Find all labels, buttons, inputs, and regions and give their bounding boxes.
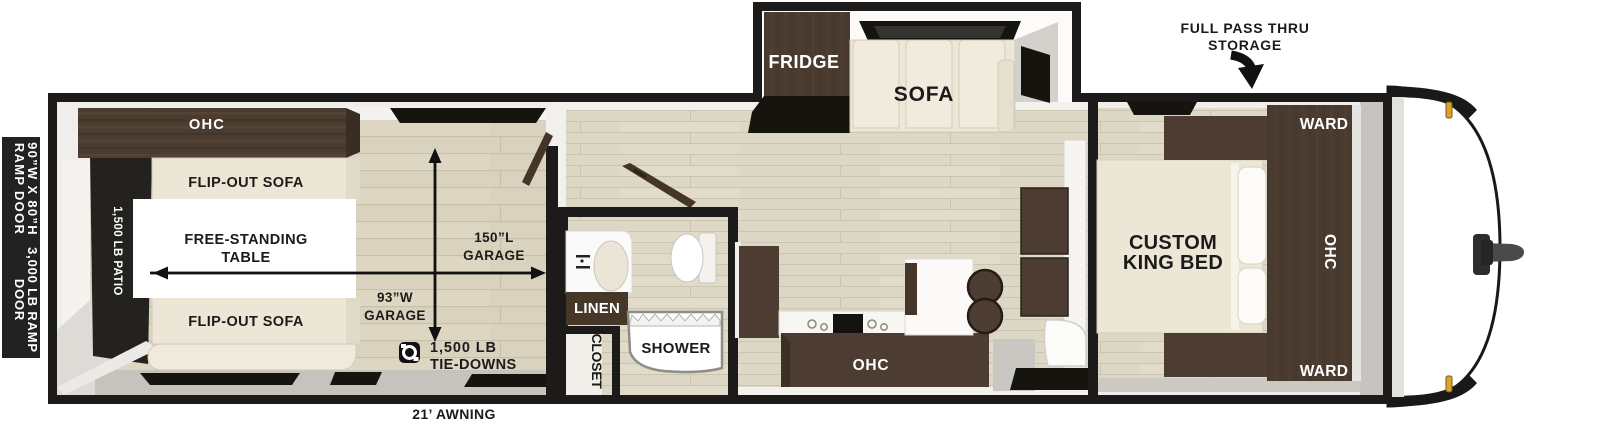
svg-text:CLOSET: CLOSET bbox=[589, 334, 605, 390]
svg-text:KING BED: KING BED bbox=[1123, 252, 1223, 274]
svg-text:OHC: OHC bbox=[189, 117, 225, 133]
svg-text:1,500 LB PATIO: 1,500 LB PATIO bbox=[111, 206, 123, 296]
svg-text:TIE-DOWNS: TIE-DOWNS bbox=[430, 357, 517, 373]
svg-text:FRIDGE: FRIDGE bbox=[768, 52, 839, 72]
svg-text:RAMP DOOR: RAMP DOOR bbox=[12, 143, 27, 235]
svg-text:FLIP-OUT SOFA: FLIP-OUT SOFA bbox=[188, 175, 304, 191]
svg-text:FULL PASS THRU: FULL PASS THRU bbox=[1180, 20, 1309, 36]
svg-text:LINEN: LINEN bbox=[574, 300, 620, 317]
svg-text:GARAGE: GARAGE bbox=[364, 308, 426, 323]
svg-text:SHOWER: SHOWER bbox=[641, 340, 710, 357]
svg-text:OHC: OHC bbox=[1321, 234, 1338, 270]
svg-text:FREE-STANDING: FREE-STANDING bbox=[184, 232, 307, 248]
svg-text:FLIP-OUT SOFA: FLIP-OUT SOFA bbox=[188, 314, 304, 330]
svg-text:150”L: 150”L bbox=[474, 230, 514, 245]
svg-text:OHC: OHC bbox=[853, 357, 890, 374]
svg-text:STORAGE: STORAGE bbox=[1208, 37, 1282, 53]
svg-text:WARD: WARD bbox=[1300, 116, 1349, 133]
svg-text:WARD: WARD bbox=[1300, 363, 1349, 380]
svg-text:TABLE: TABLE bbox=[221, 250, 270, 266]
svg-text:93”W: 93”W bbox=[377, 290, 413, 305]
svg-text:GARAGE: GARAGE bbox=[463, 248, 525, 263]
svg-text:SOFA: SOFA bbox=[894, 83, 954, 106]
svg-text:21’ AWNING: 21’ AWNING bbox=[412, 406, 496, 421]
svg-text:1,500 LB: 1,500 LB bbox=[430, 340, 497, 356]
svg-text:CUSTOM: CUSTOM bbox=[1129, 232, 1217, 254]
svg-text:DOOR: DOOR bbox=[12, 279, 27, 321]
